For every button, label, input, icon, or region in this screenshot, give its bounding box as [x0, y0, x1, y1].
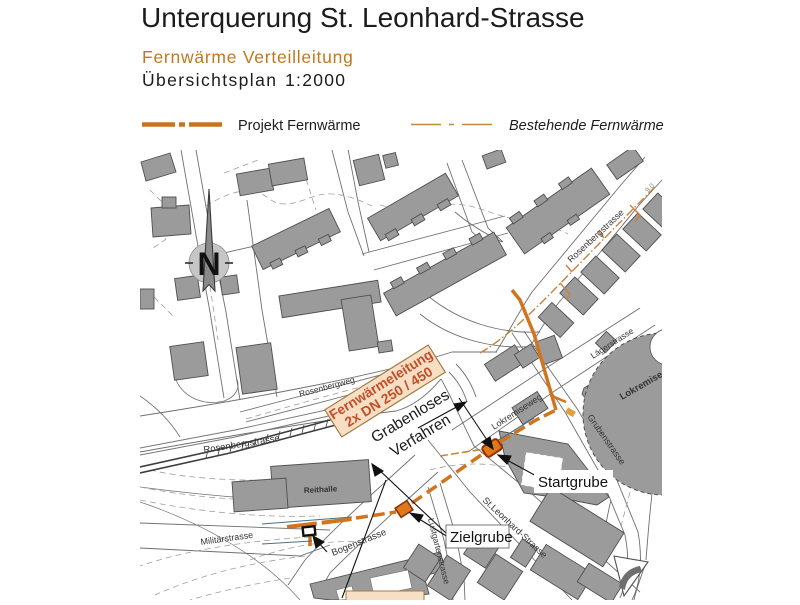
- svg-text:Projekt Fernwärme: Projekt Fernwärme: [238, 118, 360, 134]
- svg-text:Zielgrube: Zielgrube: [450, 529, 513, 546]
- svg-text:Unterquerung St. Leonhard-Stra: Unterquerung St. Leonhard-Strasse: [141, 2, 585, 33]
- svg-text:Fernwärme Verteilleitung: Fernwärme Verteilleitung: [142, 47, 354, 67]
- svg-text:N: N: [197, 246, 220, 282]
- svg-text:Reithalle: Reithalle: [304, 484, 338, 495]
- svg-text:Bestehende Fernwärme: Bestehende Fernwärme: [509, 118, 664, 134]
- svg-text:1:2000: 1:2000: [285, 70, 346, 90]
- svg-text:Übersichtsplan: Übersichtsplan: [142, 70, 277, 90]
- svg-text:Startgrube: Startgrube: [538, 474, 608, 491]
